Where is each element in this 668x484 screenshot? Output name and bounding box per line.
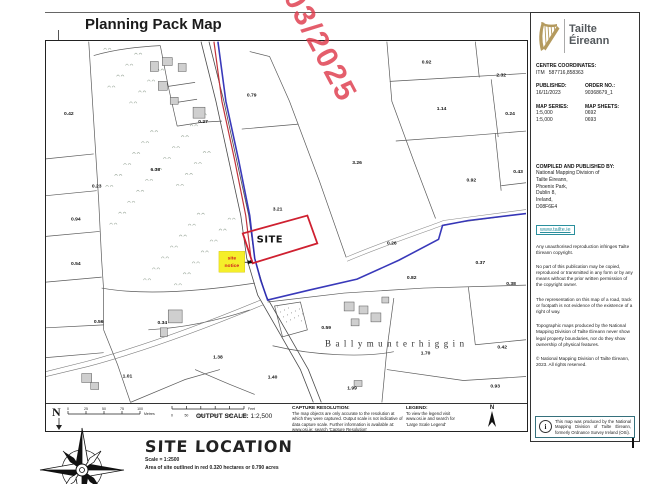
compiled-line: National Mapping Division of bbox=[536, 170, 634, 177]
svg-text:50: 50 bbox=[185, 414, 189, 418]
red-boundary-line bbox=[214, 42, 251, 257]
copyright-notice: © National Mapping Division of Tailte Éi… bbox=[536, 356, 634, 368]
registration-tick bbox=[632, 438, 634, 448]
parcel-area-label: 0.37 bbox=[475, 260, 485, 266]
parcel-area-label: 0.24 bbox=[505, 111, 515, 117]
capture-resolution-note: CAPTURE RESOLUTION: The map objects are … bbox=[292, 406, 404, 432]
parcel-area-label: 0.92 bbox=[422, 59, 432, 65]
copyright-paragraph: The representation on this map of a road… bbox=[536, 297, 634, 316]
map-sheets-value: 0692 bbox=[585, 110, 634, 117]
site-location-area: Area of site outlined in red 0.320 hecta… bbox=[145, 465, 293, 472]
site-notice-line2: notice bbox=[225, 263, 240, 269]
svg-text:75: 75 bbox=[120, 407, 124, 411]
output-scale-value: 1:2,500 bbox=[251, 413, 273, 420]
compiled-by-block: COMPILED AND PUBLISHED BY: National Mapp… bbox=[536, 164, 634, 211]
legend-text: To view the legend visit www.osi.ie and … bbox=[406, 411, 466, 427]
map-series-value: 1:5,000 bbox=[536, 117, 585, 124]
grid-tick bbox=[58, 30, 59, 40]
legend-note: LEGEND: To view the legend visit www.osi… bbox=[406, 406, 466, 427]
parcel-area-label: 0.38 bbox=[506, 281, 516, 287]
map-info-panel: Tailte Éireann CENTRE COORDINATES: ITM 5… bbox=[530, 12, 640, 442]
parcel-area-label: 1.40 bbox=[268, 375, 278, 381]
townland-name: Ballymunterhiggin bbox=[325, 339, 469, 349]
gravel-stipple bbox=[277, 306, 303, 322]
compiled-line: D08F6E4 bbox=[536, 204, 634, 211]
parcel-area-label: 0.42 bbox=[497, 345, 507, 351]
svg-text:Metres: Metres bbox=[144, 412, 155, 416]
brand-divider bbox=[564, 19, 565, 53]
parcel-area-label: 0.23 bbox=[92, 184, 102, 190]
parcel-area-label: 0.26 bbox=[387, 240, 397, 246]
map-frame: SITE site notice Ballymunterhiggin 0.420… bbox=[45, 40, 528, 432]
copyright-paragraph: Any unauthorised reproduction infringes … bbox=[536, 244, 634, 256]
parcel-area-label: 1.38 bbox=[213, 355, 223, 361]
parcel-area-label: 0.92 bbox=[467, 178, 477, 184]
parcel-area-label: 3.26 bbox=[352, 160, 362, 166]
parcel-area-label: 0.34 bbox=[157, 320, 167, 326]
parcel-area-label: 0.94 bbox=[71, 217, 81, 223]
svg-text:Feet: Feet bbox=[248, 407, 255, 411]
compiled-line: Ireland, bbox=[536, 197, 634, 204]
parcel-area-label: 0.93 bbox=[490, 383, 500, 389]
parcel-area-label: 0.82 bbox=[407, 275, 417, 281]
road bbox=[46, 42, 321, 403]
parcel-area-label: 6.38 bbox=[150, 167, 160, 173]
coordinate-value: 587716,858363 bbox=[549, 70, 584, 76]
parcel-area-label: 1.01 bbox=[123, 374, 133, 380]
svg-text:100: 100 bbox=[137, 407, 143, 411]
parcel-area-label: 3.21 bbox=[273, 207, 283, 213]
parcel-area-label: 1.14 bbox=[437, 106, 447, 112]
svg-text:25: 25 bbox=[84, 407, 88, 411]
producer-info-box: i This map was produced by the National … bbox=[535, 416, 635, 438]
parcel-area-label: 0.54 bbox=[71, 261, 81, 267]
parcel-area-label: 0.56 bbox=[94, 319, 104, 325]
parcel-area-label: 0.43 bbox=[513, 169, 523, 175]
compiled-line: Tailte Éireann, bbox=[536, 177, 634, 184]
svg-text:50: 50 bbox=[102, 407, 106, 411]
parcel-area-label: 0.42 bbox=[64, 111, 74, 117]
map-canvas: SITE site notice Ballymunterhiggin 0.420… bbox=[46, 41, 526, 403]
site-label: SITE bbox=[257, 234, 283, 245]
published-order-row: PUBLISHED: 16/11/2023 ORDER NO.: 9036867… bbox=[536, 83, 634, 96]
parcel-area-label: 0.59 bbox=[321, 325, 331, 331]
parcel-area-label: 1.70 bbox=[421, 351, 431, 357]
output-scale-label: OUTPUT SCALE: bbox=[196, 413, 249, 420]
svg-text:0: 0 bbox=[67, 407, 69, 411]
site-location-scale: Scale = 1:2500 bbox=[145, 457, 293, 464]
info-icon: i bbox=[539, 420, 552, 433]
map-sheets-value: 0693 bbox=[585, 117, 634, 124]
published-value: 16/11/2023 bbox=[536, 90, 585, 97]
producer-info-text: This map was produced by the National Ma… bbox=[555, 419, 631, 435]
parcel-area-label: 0.79 bbox=[247, 92, 257, 98]
tailte-website-link[interactable]: www.tailte.ie bbox=[536, 225, 575, 235]
compiled-line: Dublin 8, bbox=[536, 190, 634, 197]
page-title: Planning Pack Map bbox=[85, 16, 222, 33]
site-location-title: SITE LOCATION bbox=[145, 437, 294, 456]
brand-line2: Éireann bbox=[569, 36, 609, 48]
marsh-symbols bbox=[104, 48, 240, 285]
metres-scale-bar: 0255075100Metres bbox=[64, 406, 164, 418]
copyright-paragraph: Topographic maps produced by the Nationa… bbox=[536, 323, 634, 348]
compass-rose-icon bbox=[28, 424, 138, 484]
tailte-eireann-brand: Tailte Éireann bbox=[536, 19, 634, 53]
capture-resolution-text: The map objects are only accurate to the… bbox=[292, 411, 404, 432]
parcel-area-label: 1.99 bbox=[347, 385, 357, 391]
site-location-block: SITE LOCATION Scale = 1:2500 Area of sit… bbox=[145, 437, 293, 472]
svg-text:0: 0 bbox=[171, 414, 173, 418]
parcel-area-label: 2.32 bbox=[496, 72, 506, 78]
series-sheets-row: MAP SERIES: 1:5,000 1:5,000 MAP SHEETS: … bbox=[536, 104, 634, 124]
centre-coordinates: CENTRE COORDINATES: ITM 587716,858363 bbox=[536, 63, 634, 76]
north-indicator-right: N bbox=[484, 405, 500, 433]
harp-logo-icon bbox=[536, 20, 560, 52]
site-notice-line1: site bbox=[228, 255, 237, 261]
output-scale: OUTPUT SCALE: 1:2,500 bbox=[196, 413, 272, 420]
map-series-value: 1:5,000 bbox=[536, 110, 585, 117]
north-arrow-icon bbox=[486, 411, 498, 428]
compiled-line: Phoenix Park, bbox=[536, 184, 634, 191]
coordinate-system: ITM bbox=[536, 70, 545, 76]
brand-name: Tailte Éireann bbox=[569, 24, 609, 48]
copyright-paragraph: No part of this publication may be copie… bbox=[536, 264, 634, 289]
order-no-value: 90368679_1 bbox=[585, 90, 634, 97]
parcel-area-label: 0.27 bbox=[198, 119, 208, 125]
